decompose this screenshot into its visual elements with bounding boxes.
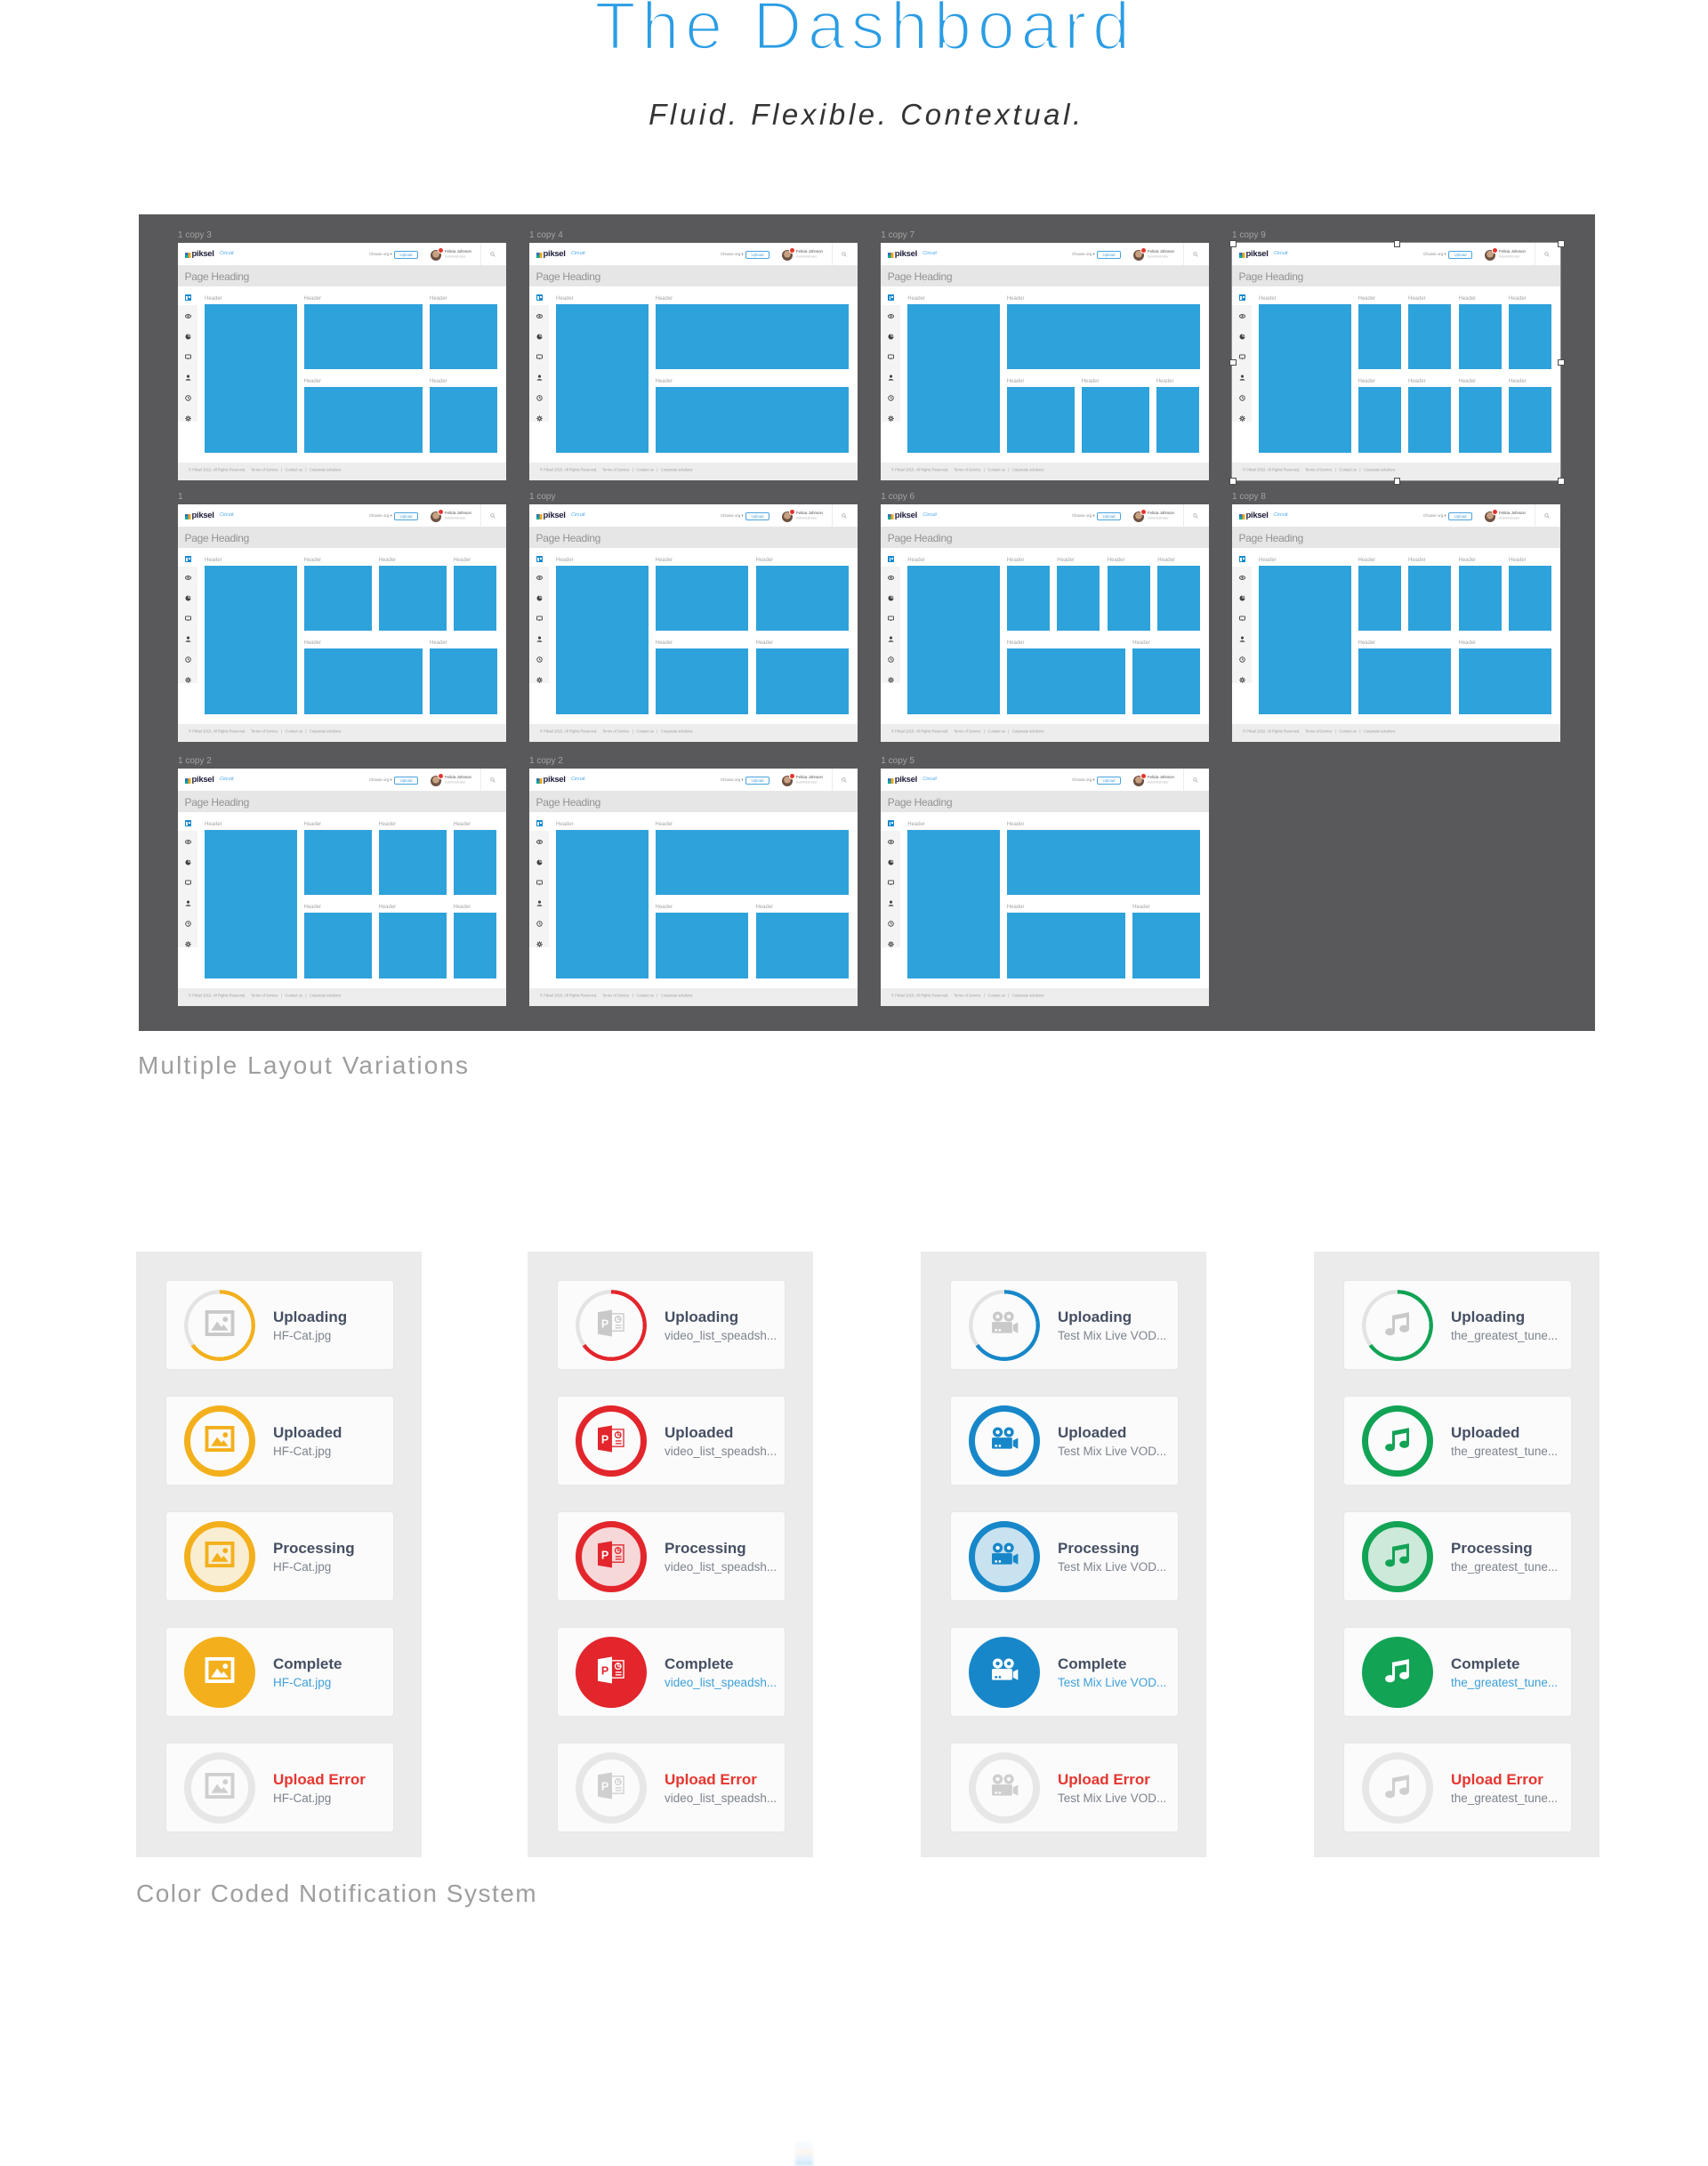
svg-text:P: P (601, 1549, 608, 1561)
svg-text:P: P (601, 1317, 608, 1330)
svg-text:P: P (601, 1433, 608, 1445)
svg-text:P: P (601, 1664, 608, 1677)
svg-text:P: P (601, 1780, 608, 1792)
